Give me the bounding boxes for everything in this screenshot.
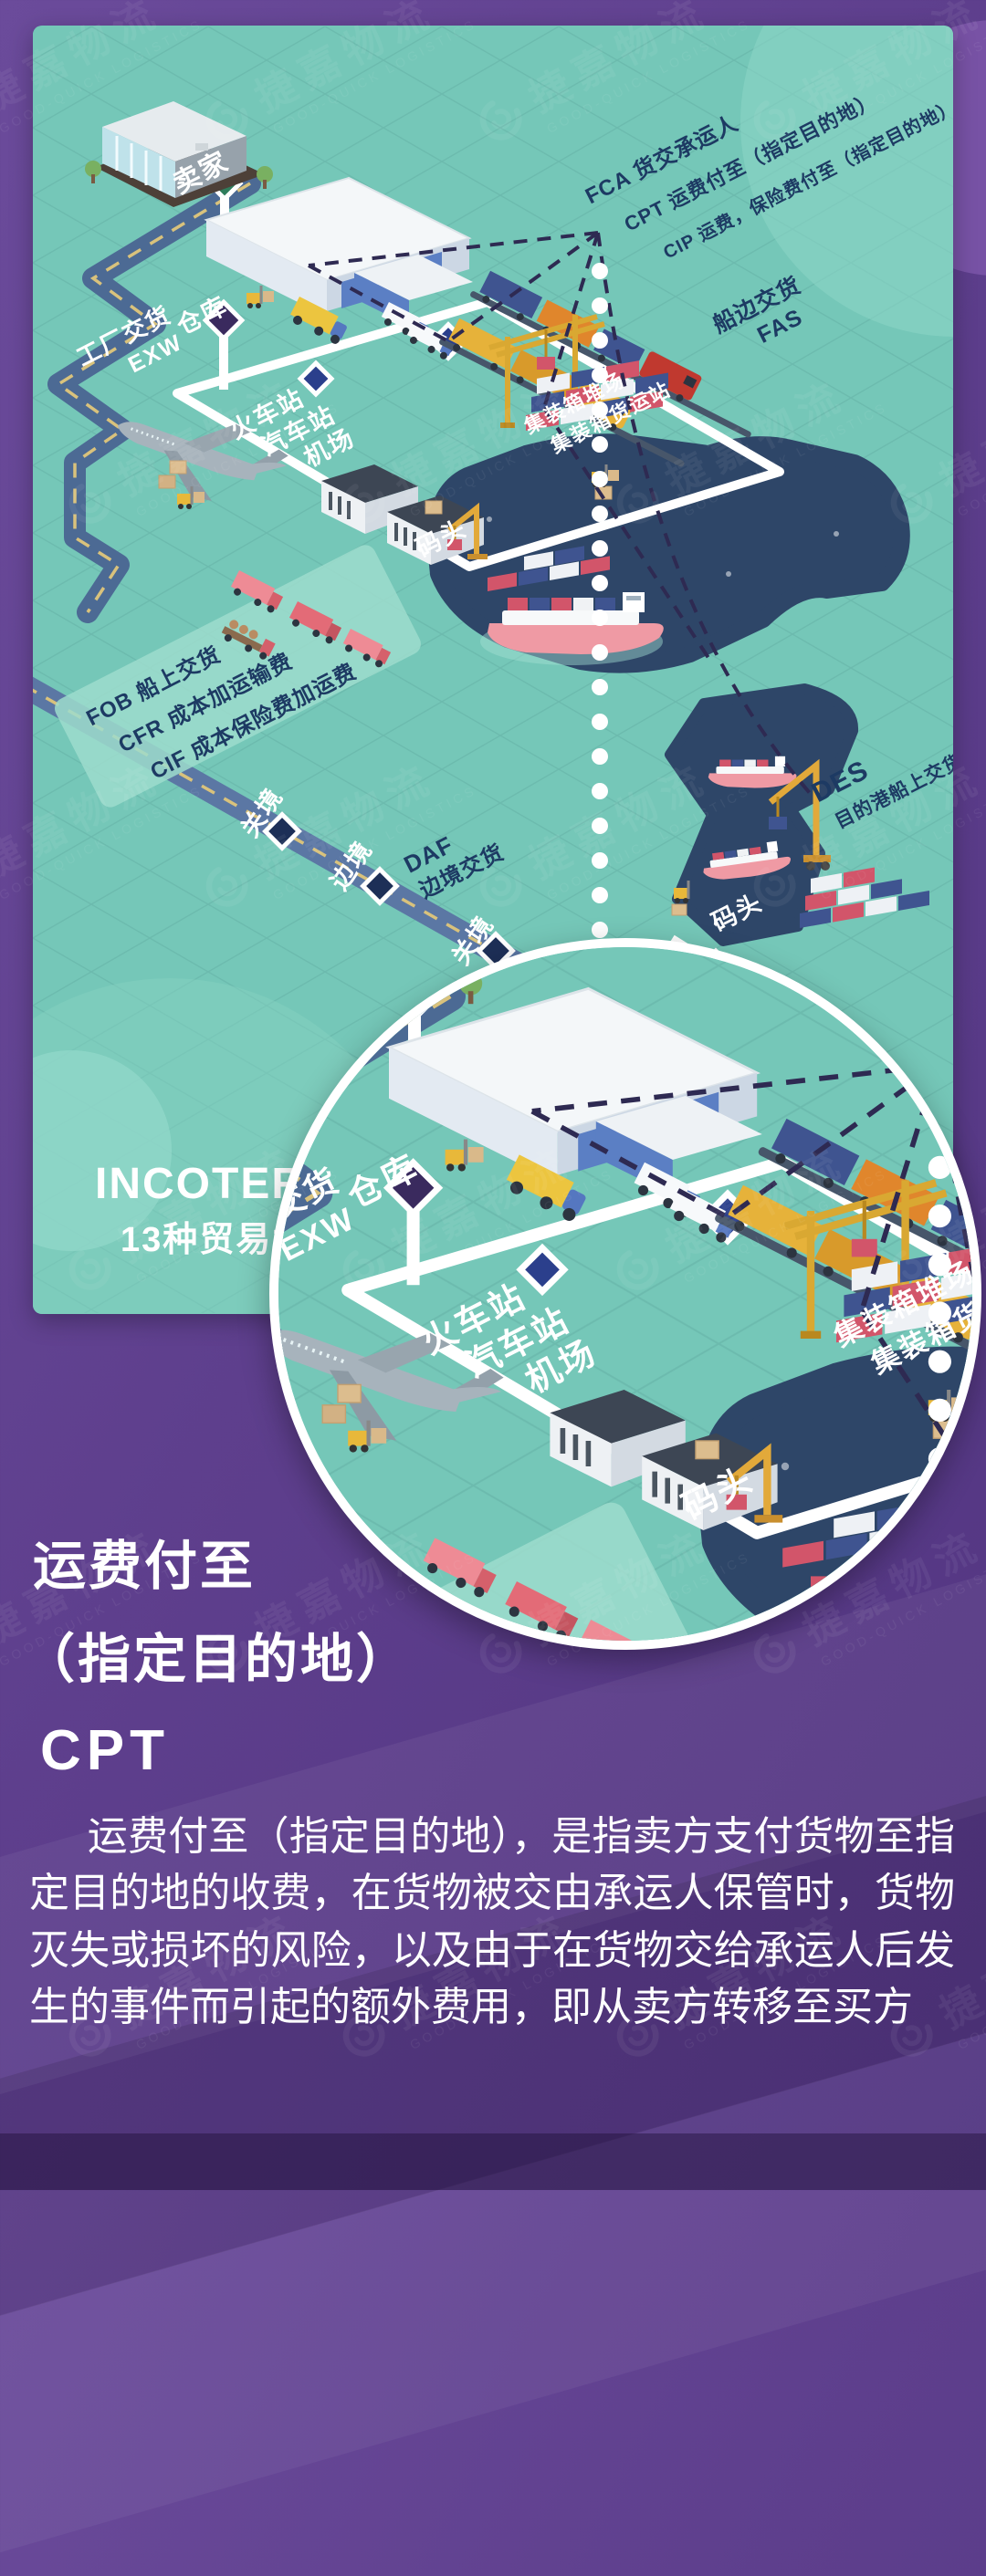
article-title-line3: CPT	[40, 1723, 170, 1779]
article-title-line2: （指定目的地）	[22, 1633, 412, 1686]
watermark-en-text: GOOD-QUICK LOGISTICS	[955, 399, 986, 519]
magnifier-circle	[269, 938, 981, 1650]
logistics-swirl-logo-icon	[197, 1622, 258, 1685]
bottom-shade-band	[0, 2133, 986, 2190]
magnified-map-view	[278, 947, 972, 1641]
watermark-item: 捷嘉物流 GOOD-QUICK LOGISTICS	[0, 1497, 205, 1696]
article-title-line1: 运费付至	[33, 1540, 256, 1593]
watermark-cn-text: 捷嘉物流	[0, 1497, 198, 1656]
watermark-en-text: GOOD-QUICK LOGISTICS	[0, 1549, 205, 1669]
